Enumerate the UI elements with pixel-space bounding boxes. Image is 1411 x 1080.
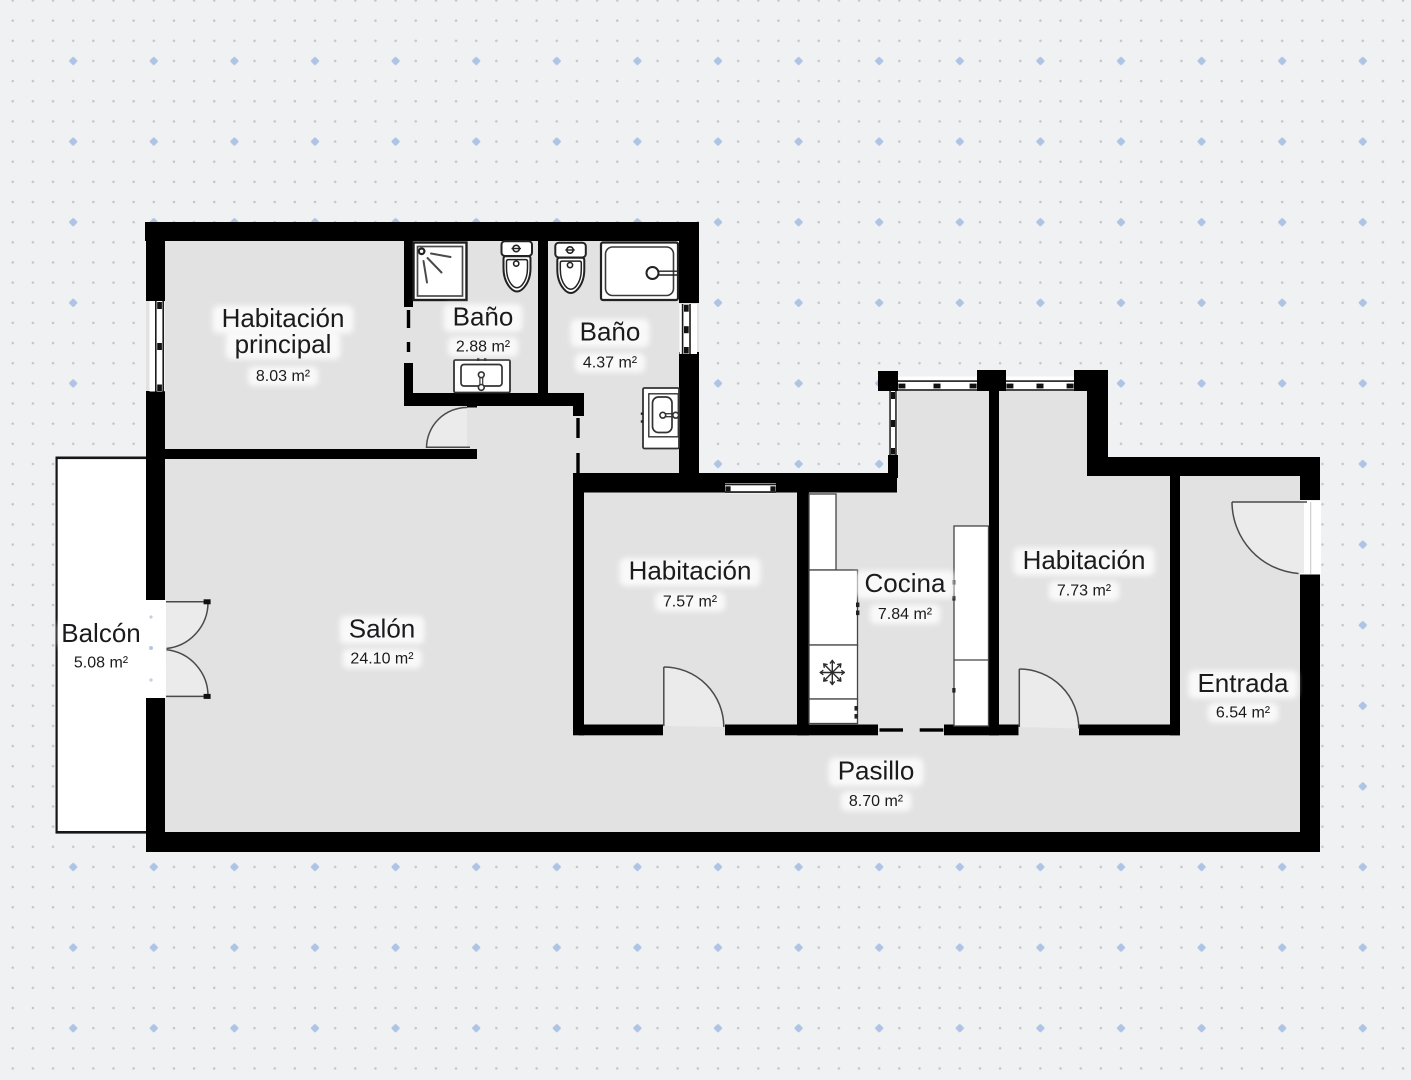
- svg-text:Habitación: Habitación: [629, 556, 752, 586]
- svg-text:Baño: Baño: [580, 317, 641, 347]
- svg-text:Habitación: Habitación: [1023, 545, 1146, 575]
- svg-text:Entrada: Entrada: [1197, 668, 1289, 698]
- svg-text:4.37 m²: 4.37 m²: [583, 355, 638, 372]
- svg-text:Pasillo: Pasillo: [838, 756, 915, 786]
- svg-text:8.70 m²: 8.70 m²: [849, 793, 904, 810]
- svg-text:Cocina: Cocina: [865, 568, 946, 598]
- svg-text:6.54 m²: 6.54 m²: [1216, 705, 1271, 722]
- svg-text:7.73 m²: 7.73 m²: [1057, 583, 1112, 600]
- svg-text:5.08 m²: 5.08 m²: [74, 655, 129, 672]
- svg-text:principal: principal: [235, 329, 332, 359]
- svg-text:7.57 m²: 7.57 m²: [663, 594, 718, 611]
- svg-text:Balcón: Balcón: [61, 618, 141, 648]
- svg-text:24.10 m²: 24.10 m²: [350, 651, 414, 668]
- svg-text:7.84 m²: 7.84 m²: [878, 606, 933, 623]
- svg-text:Salón: Salón: [349, 614, 416, 644]
- svg-text:2.88 m²: 2.88 m²: [456, 339, 511, 356]
- svg-text:8.03 m²: 8.03 m²: [256, 368, 311, 385]
- svg-text:Baño: Baño: [453, 302, 514, 332]
